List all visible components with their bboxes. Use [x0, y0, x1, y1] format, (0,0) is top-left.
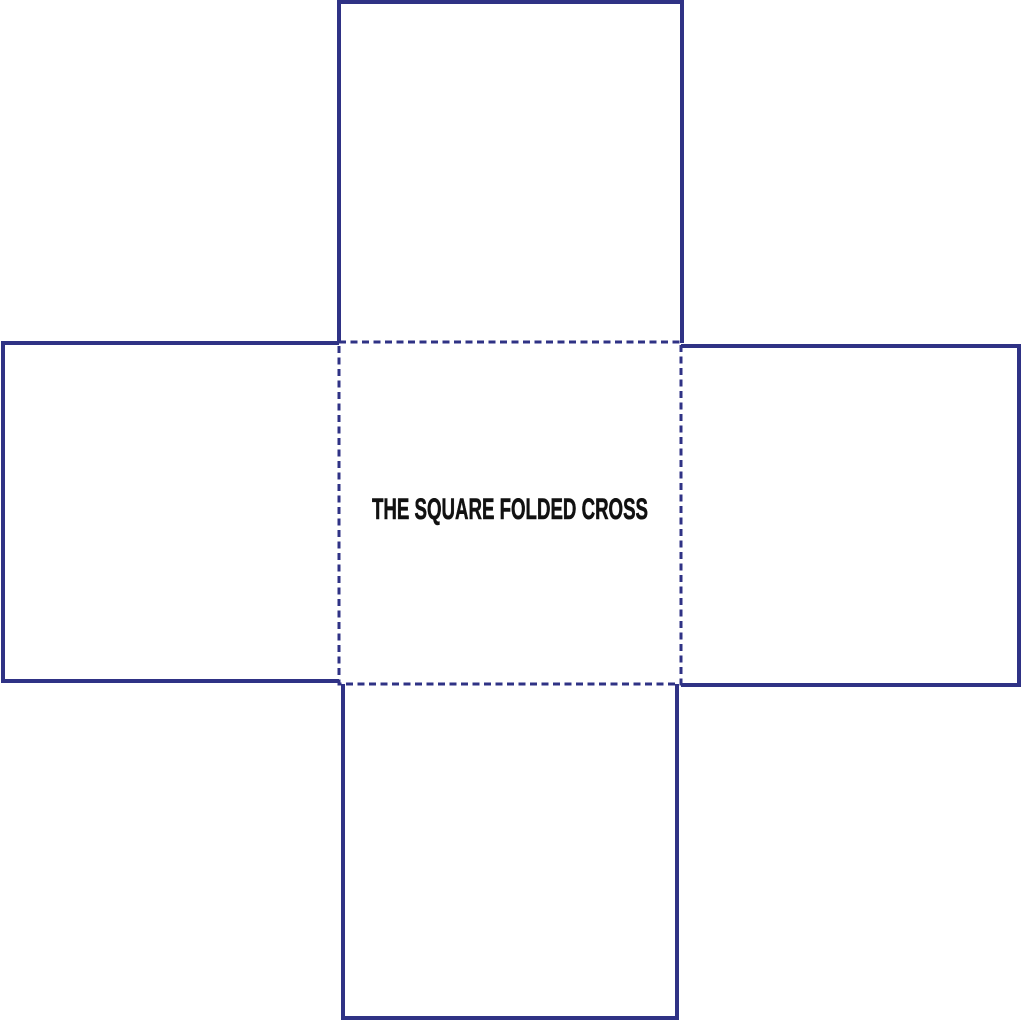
flap-left	[3, 343, 339, 681]
flap-bottom	[343, 684, 677, 1018]
fold-template-page: THE SQUARE FOLDED CROSS	[0, 0, 1024, 1024]
diagram-title: THE SQUARE FOLDED CROSS	[372, 493, 648, 526]
flap-top	[339, 2, 682, 343]
flap-right	[681, 346, 1019, 685]
fold-template-diagram: THE SQUARE FOLDED CROSS	[0, 0, 1024, 1024]
